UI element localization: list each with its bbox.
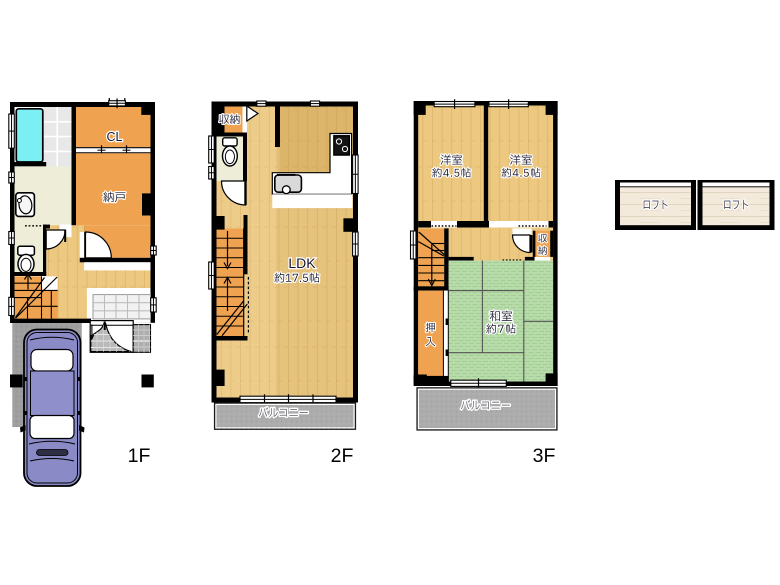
svg-text:1F: 1F xyxy=(128,445,151,467)
svg-text:CL: CL xyxy=(107,130,123,144)
svg-text:3F: 3F xyxy=(533,445,556,467)
svg-text:2F: 2F xyxy=(331,445,354,467)
svg-text:LDK: LDK xyxy=(288,255,316,271)
